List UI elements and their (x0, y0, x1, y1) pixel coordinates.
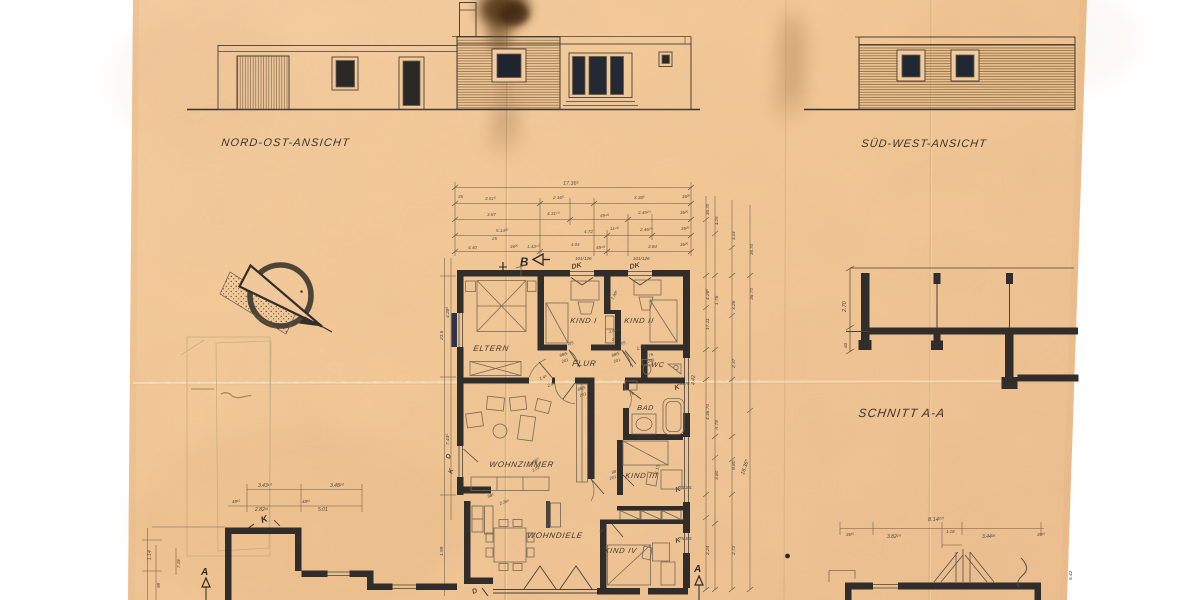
svg-text:KIND II: KIND II (624, 316, 655, 325)
svg-text:49⁴⁹: 49⁴⁹ (600, 213, 609, 218)
svg-text:7.44⁵: 7.44⁵ (445, 434, 451, 445)
svg-text:3.14: 3.14 (731, 231, 736, 240)
svg-text:25: 25 (491, 236, 497, 241)
svg-text:3.80: 3.80 (714, 470, 720, 480)
svg-text:2.37: 2.37 (731, 358, 737, 369)
svg-text:4.26: 4.26 (714, 216, 719, 225)
svg-text:1.99: 1.99 (439, 546, 445, 556)
svg-text:3.84: 3.84 (648, 244, 657, 249)
svg-text:3.51⁵: 3.51⁵ (485, 196, 496, 201)
svg-text:BAD: BAD (637, 405, 655, 412)
svg-text:48¹⁵: 48¹⁵ (302, 499, 310, 504)
svg-text:2.24: 2.24 (705, 545, 711, 556)
svg-text:WOHNDIELE: WOHNDIELE (527, 531, 584, 540)
svg-text:A.78: A.78 (714, 420, 720, 431)
svg-text:5.14²⁵: 5.14²⁵ (496, 228, 508, 233)
svg-text:36: 36 (458, 194, 463, 199)
svg-text:101/126: 101/126 (633, 256, 650, 261)
svg-text:1.43¹⁰: 1.43¹⁰ (527, 244, 540, 249)
svg-text:3.44²⁵: 3.44²⁵ (982, 534, 996, 540)
svg-text:2.46²⁰: 2.46²⁰ (639, 227, 653, 232)
svg-text:98: 98 (156, 583, 161, 588)
svg-text:9.80: 9.80 (731, 460, 737, 470)
svg-text:4.28⁵: 4.28⁵ (445, 307, 451, 318)
svg-text:11⁴⁹: 11⁴⁹ (610, 226, 619, 231)
svg-text:FLUR: FLUR (572, 359, 597, 368)
svg-text:36.70: 36.70 (705, 203, 710, 215)
svg-text:WOHNZIMMER: WOHNZIMMER (489, 460, 555, 469)
svg-text:2.70: 2.70 (842, 300, 848, 313)
svg-text:1.14: 1.14 (147, 550, 153, 560)
svg-text:SCHNITT A-A: SCHNITT A-A (858, 406, 947, 420)
svg-text:36²⁵: 36²⁵ (681, 226, 689, 231)
svg-text:3.87: 3.87 (487, 212, 496, 217)
svg-text:23.5: 23.5 (439, 330, 445, 341)
svg-text:36¹⁵: 36¹⁵ (846, 532, 854, 537)
svg-text:36²⁵: 36²⁵ (680, 242, 688, 247)
svg-text:SÜD-WEST-ANSICHT: SÜD-WEST-ANSICHT (861, 138, 988, 150)
svg-text:36.70: 36.70 (749, 288, 755, 300)
svg-text:4.72: 4.72 (584, 229, 593, 234)
svg-text:3.43¹⁰: 3.43¹⁰ (258, 483, 272, 489)
svg-text:2.82¹⁵: 2.82¹⁵ (254, 507, 269, 513)
svg-text:A: A (200, 567, 208, 578)
svg-text:ELTERN: ELTERN (473, 344, 510, 353)
svg-text:1.76: 1.76 (714, 295, 720, 305)
svg-text:4.28⁵: 4.28⁵ (705, 289, 711, 300)
svg-text:2.49²⁰: 2.49²⁰ (637, 210, 651, 215)
svg-text:3.48²⁰: 3.48²⁰ (330, 483, 344, 489)
svg-text:4.36.70: 4.36.70 (705, 404, 711, 420)
svg-text:36²⁵: 36²⁵ (680, 210, 688, 215)
svg-text:7.18: 7.18 (176, 559, 181, 568)
svg-text:4.40: 4.40 (468, 245, 477, 250)
svg-text:36²⁵: 36²⁵ (510, 244, 518, 249)
svg-text:4.04: 4.04 (571, 242, 580, 247)
svg-text:4.31¹⁰: 4.31¹⁰ (547, 211, 560, 216)
svg-text:4.42: 4.42 (691, 375, 697, 385)
svg-text:17.11: 17.11 (705, 318, 711, 330)
svg-text:3.26: 3.26 (731, 300, 737, 310)
svg-text:60: 60 (843, 342, 848, 348)
svg-text:NORD-OST-ANSICHT: NORD-OST-ANSICHT (221, 137, 351, 149)
svg-text:8.14²⁰: 8.14²⁰ (928, 516, 944, 523)
svg-text:5.42: 5.42 (1068, 570, 1074, 580)
svg-text:KIND I: KIND I (570, 316, 598, 325)
svg-text:1.18: 1.18 (946, 529, 955, 534)
svg-text:3.82²⁰: 3.82²⁰ (887, 534, 901, 540)
svg-text:17.36⁵: 17.36⁵ (563, 181, 579, 187)
svg-text:5.01: 5.01 (318, 507, 328, 513)
svg-text:36.70: 36.70 (749, 243, 754, 255)
svg-text:36²⁵: 36²⁵ (682, 194, 690, 199)
svg-text:101/126: 101/126 (575, 256, 592, 261)
svg-text:2.72: 2.72 (731, 545, 737, 556)
svg-text:48¹⁵: 48¹⁵ (232, 499, 240, 504)
svg-text:A: A (693, 564, 701, 575)
svg-text:2.16⁵: 2.16⁵ (552, 195, 564, 200)
svg-text:WC: WC (651, 362, 665, 369)
svg-text:36¹⁵: 36¹⁵ (1037, 532, 1045, 537)
svg-text:KIND IV: KIND IV (604, 546, 638, 555)
svg-text:49⁴⁹: 49⁴⁹ (596, 245, 605, 250)
svg-text:75/101: 75/101 (679, 536, 692, 541)
svg-text:3.38⁵: 3.38⁵ (634, 195, 645, 200)
